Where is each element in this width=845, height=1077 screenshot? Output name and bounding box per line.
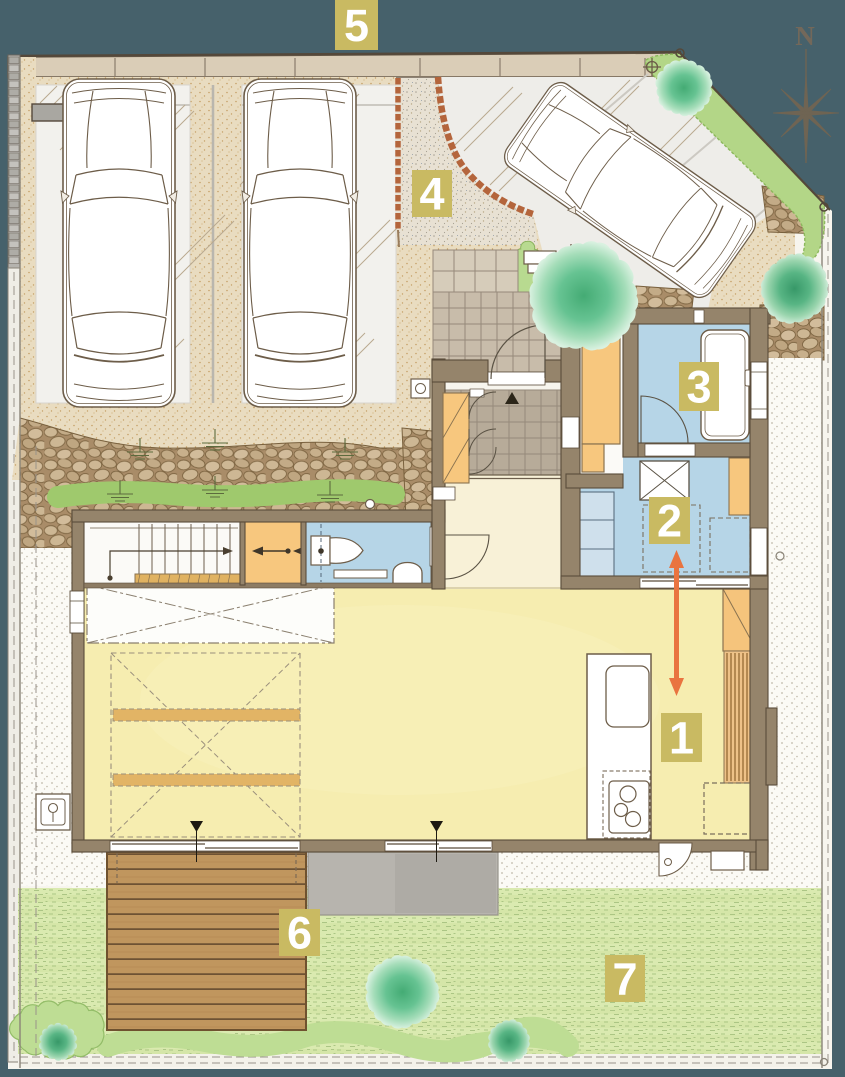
svg-text:5: 5 (344, 0, 369, 51)
svg-text:4: 4 (419, 169, 444, 220)
svg-text:7: 7 (612, 954, 637, 1005)
svg-text:N: N (795, 21, 815, 51)
svg-text:3: 3 (686, 362, 711, 413)
svg-text:1: 1 (669, 713, 694, 764)
svg-text:2: 2 (657, 496, 682, 547)
svg-text:6: 6 (287, 908, 312, 959)
